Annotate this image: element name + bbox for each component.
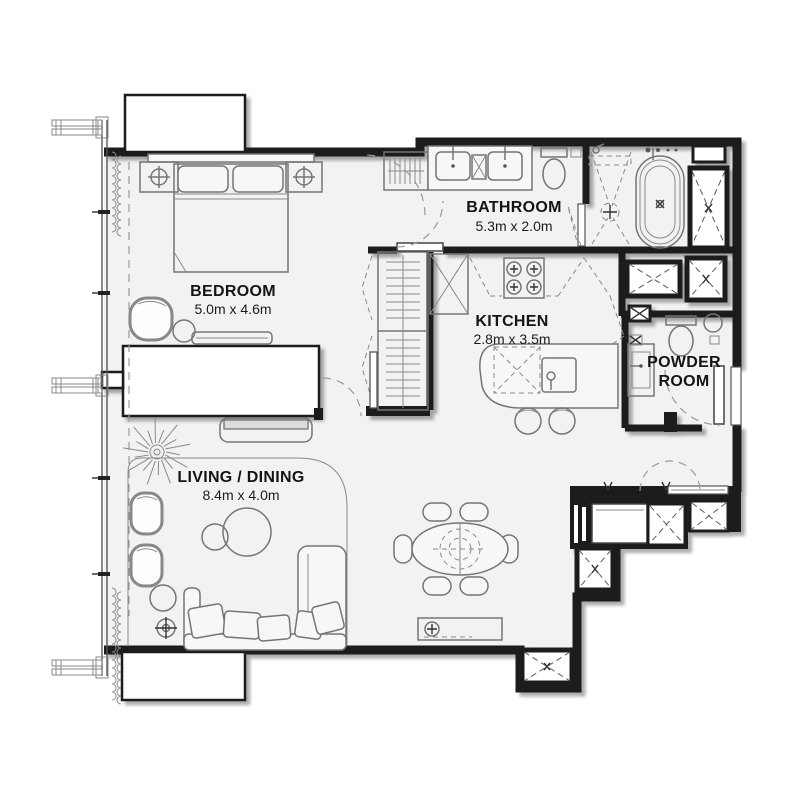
mullion-fin-top bbox=[52, 117, 108, 138]
bathroom-label: BATHROOM bbox=[466, 199, 561, 216]
powder-door-leaf bbox=[714, 366, 724, 424]
media-wall-door-hinge bbox=[314, 408, 323, 420]
neighbor-block-bottom bbox=[122, 652, 245, 700]
living-dining-dims: 8.4m x 4.0m bbox=[202, 487, 279, 503]
wetroom-door-leaf bbox=[578, 204, 585, 246]
powder-door-jamb bbox=[664, 412, 677, 432]
bedroom-label: BEDROOM bbox=[190, 283, 276, 300]
mullion-fin-bottom bbox=[52, 657, 108, 678]
armchair-2 bbox=[131, 545, 162, 586]
entry-frame bbox=[731, 367, 741, 425]
kitchen-label: KITCHEN bbox=[475, 313, 548, 330]
media-partition-wall bbox=[123, 346, 319, 416]
floor-plan-canvas: BEDROOM 5.0m x 4.6m BATHROOM 5.3m x 2.0m… bbox=[0, 0, 800, 800]
mullion-fin-middle bbox=[52, 375, 108, 396]
bathroom-dims: 5.3m x 2.0m bbox=[475, 218, 552, 234]
bed-pillow-left bbox=[178, 166, 228, 192]
duct-box bbox=[693, 146, 725, 162]
niche-slot-2 bbox=[582, 507, 586, 541]
bedroom-armchair bbox=[130, 298, 172, 340]
corridor-door-leaf bbox=[370, 352, 377, 408]
living-dining-label: LIVING / DINING bbox=[177, 469, 304, 486]
tv-icon bbox=[224, 420, 308, 429]
bed-pillow-right bbox=[233, 166, 283, 192]
niche-slot-1 bbox=[574, 505, 578, 543]
media-wall-connector bbox=[102, 372, 123, 388]
bed-headboard bbox=[148, 154, 314, 162]
kitchen-dims: 2.8m x 3.5m bbox=[473, 331, 550, 347]
floor-plan-page: BEDROOM 5.0m x 4.6m BATHROOM 5.3m x 2.0m… bbox=[0, 0, 800, 800]
powder-room-label-line2: ROOM bbox=[659, 373, 710, 390]
armchair-1 bbox=[131, 493, 162, 534]
powder-room-label-line1: POWDER bbox=[647, 354, 721, 371]
neighbor-block-top bbox=[125, 95, 245, 152]
bedroom-dims: 5.0m x 4.6m bbox=[194, 301, 271, 317]
